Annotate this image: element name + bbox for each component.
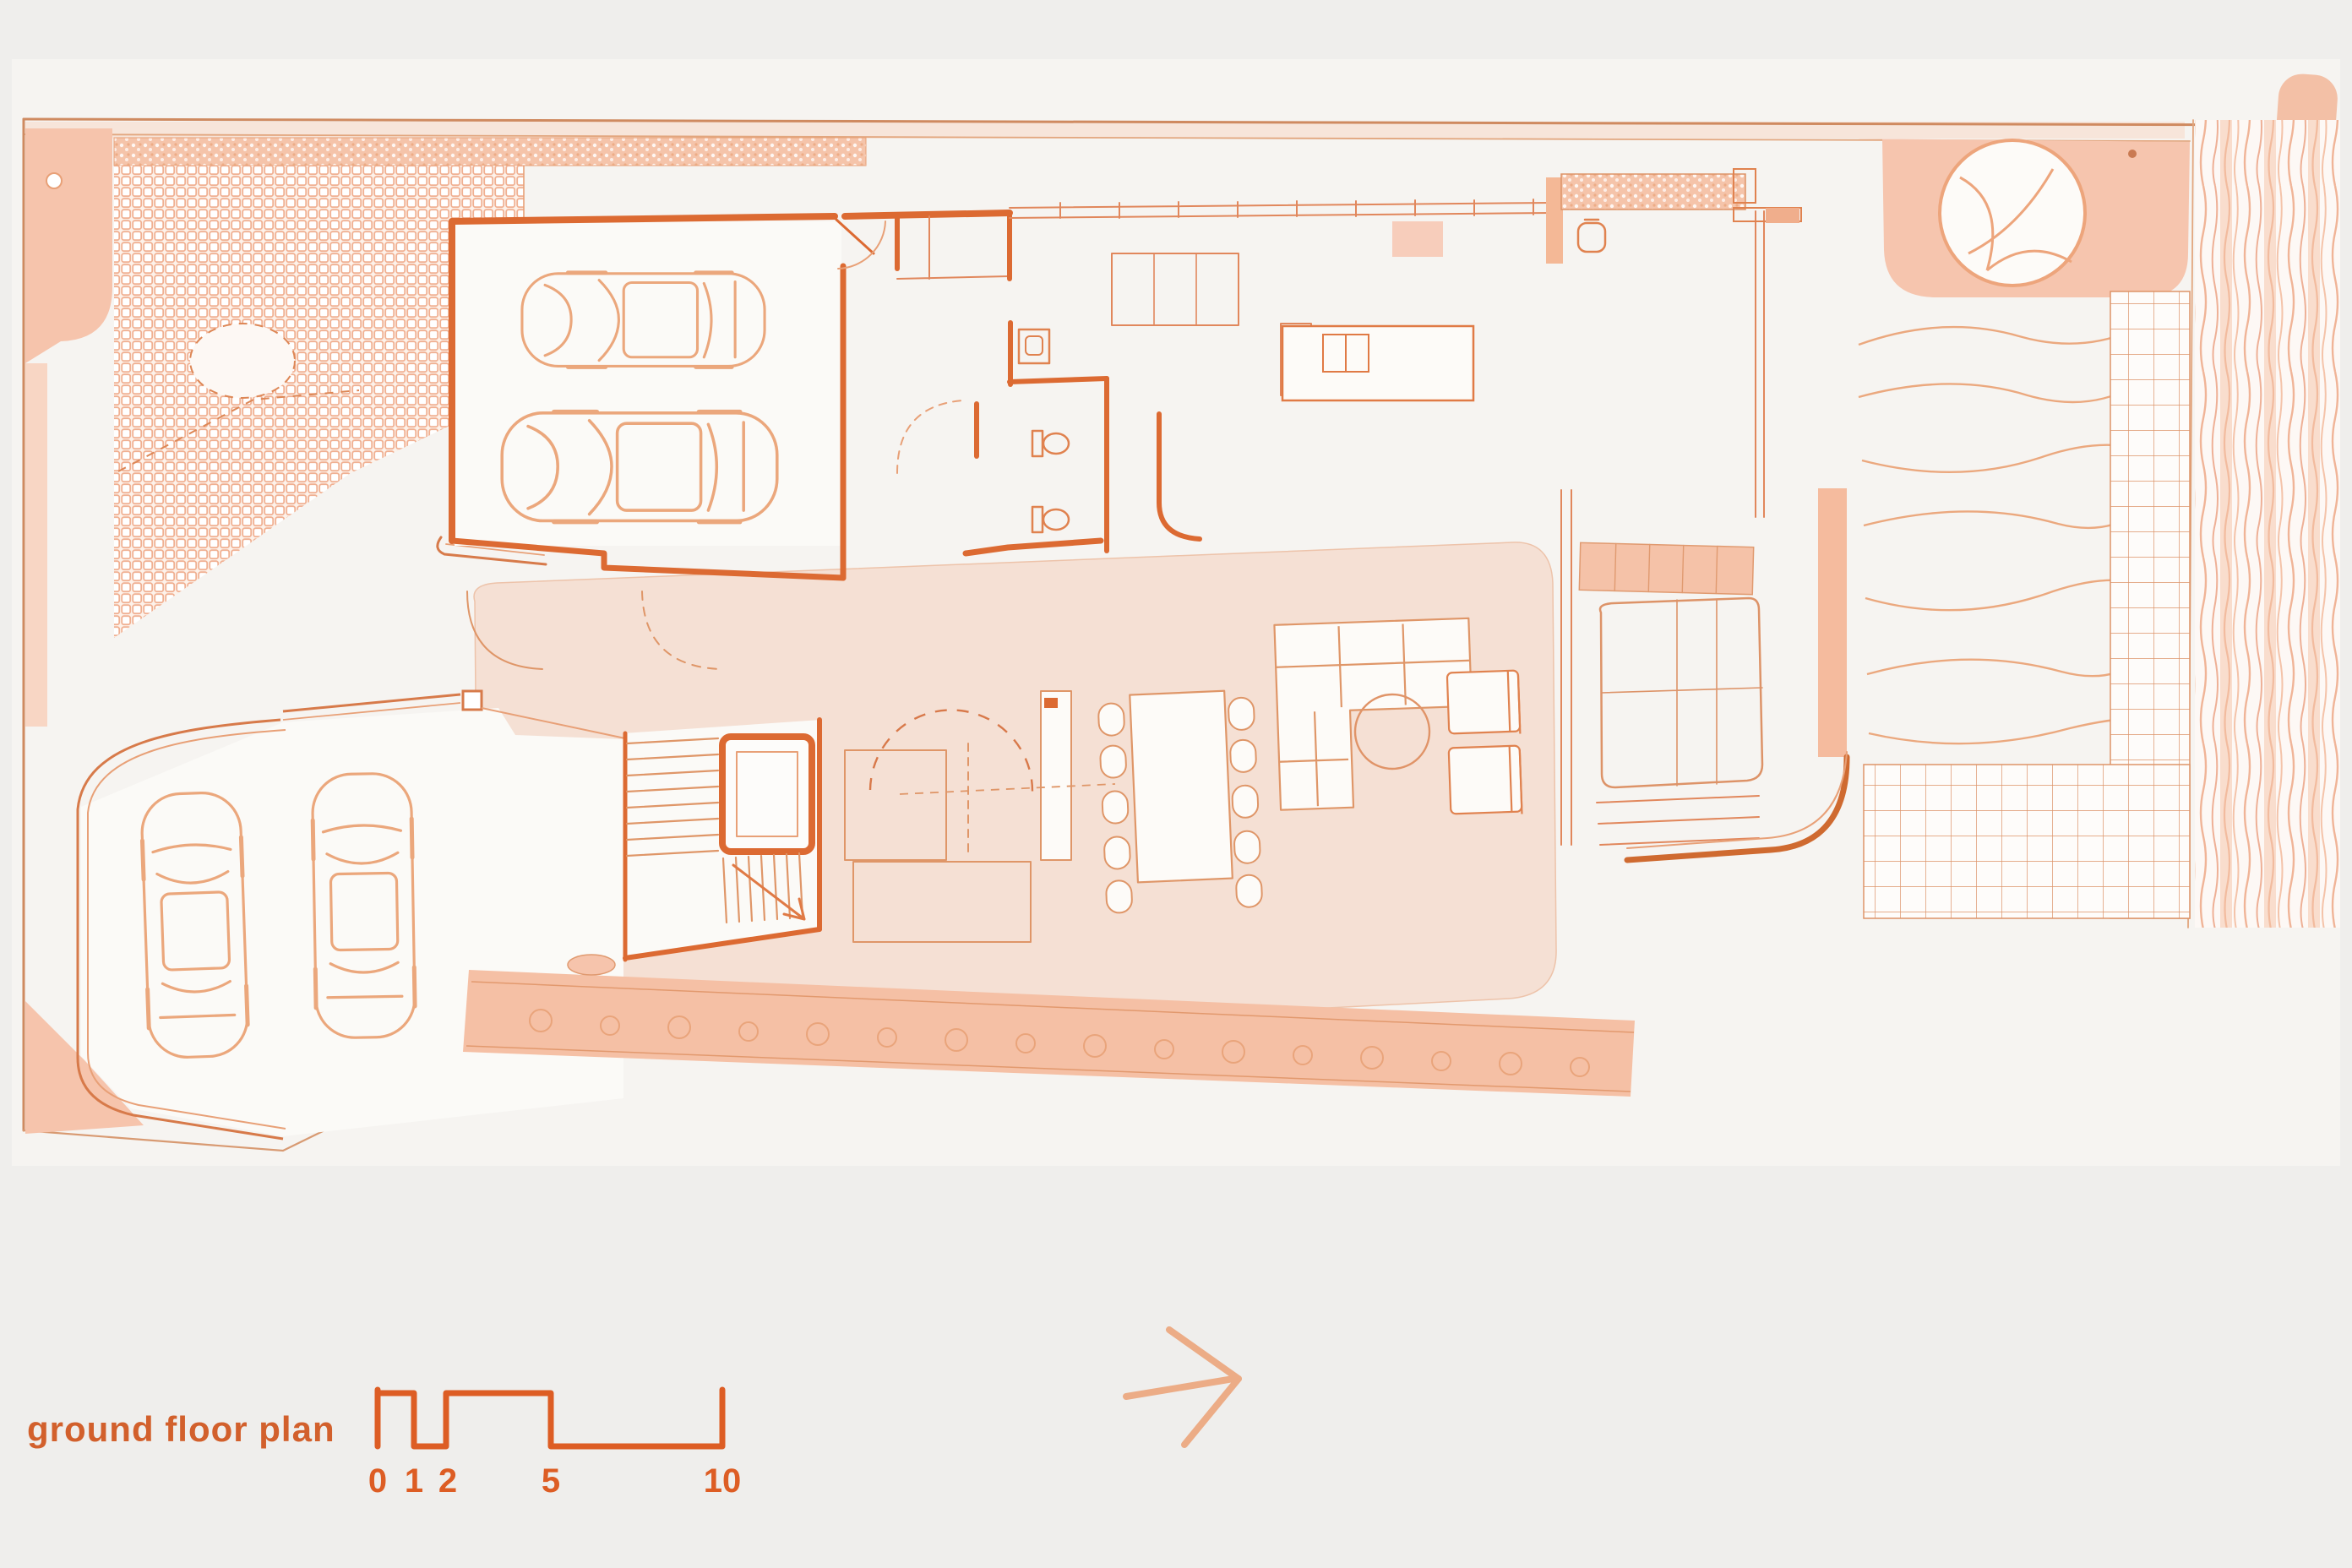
dining-chair <box>1228 697 1255 730</box>
dining-chair <box>1098 703 1125 736</box>
ground-floor-plan-drawing: ground floor plan 0 1 2 5 10 <box>0 0 2352 1568</box>
garage <box>452 216 885 578</box>
armchair-2 <box>1449 746 1522 817</box>
dining-chair <box>1106 880 1133 913</box>
scale-label-5: 5 <box>542 1462 560 1500</box>
floor-plan-page: ground floor plan 0 1 2 5 10 <box>0 0 2352 1568</box>
dining-chair <box>1100 745 1127 778</box>
kitchen-island <box>1282 326 1473 400</box>
window-seat <box>1392 221 1443 257</box>
dining-chair <box>1102 791 1129 824</box>
kitchen-counter <box>1561 174 1745 210</box>
scale-label-0: 0 <box>368 1462 387 1500</box>
wall-pier <box>1546 177 1563 264</box>
dining-chair <box>1230 739 1257 772</box>
sideboard <box>1041 691 1071 860</box>
dining-chair <box>1233 830 1260 863</box>
dining-chair <box>1232 785 1259 818</box>
north-arrow-icon <box>1126 1330 1239 1445</box>
armchair <box>1447 671 1521 737</box>
hedge-wall <box>1818 488 1847 757</box>
planter-box <box>1579 542 1753 594</box>
gate-post <box>463 691 482 710</box>
drain-dot <box>2128 150 2137 158</box>
scale-label-1: 1 <box>405 1462 423 1500</box>
planting-bed-outline <box>190 324 295 398</box>
scale-bar: 0 1 2 5 10 <box>368 1390 741 1500</box>
planter-pot <box>568 955 615 975</box>
scale-bar-line <box>378 1390 722 1446</box>
dining-chair <box>1236 874 1263 907</box>
survey-peg-icon <box>46 173 62 188</box>
scale-label-10: 10 <box>704 1462 742 1500</box>
dining-chair <box>1104 836 1131 869</box>
dining-table <box>1130 691 1233 883</box>
plan-title: ground floor plan <box>27 1409 335 1449</box>
stair-void <box>722 737 812 852</box>
beach-texture <box>2195 120 2340 928</box>
tree-icon <box>1940 140 2085 286</box>
scale-label-2: 2 <box>438 1462 457 1500</box>
